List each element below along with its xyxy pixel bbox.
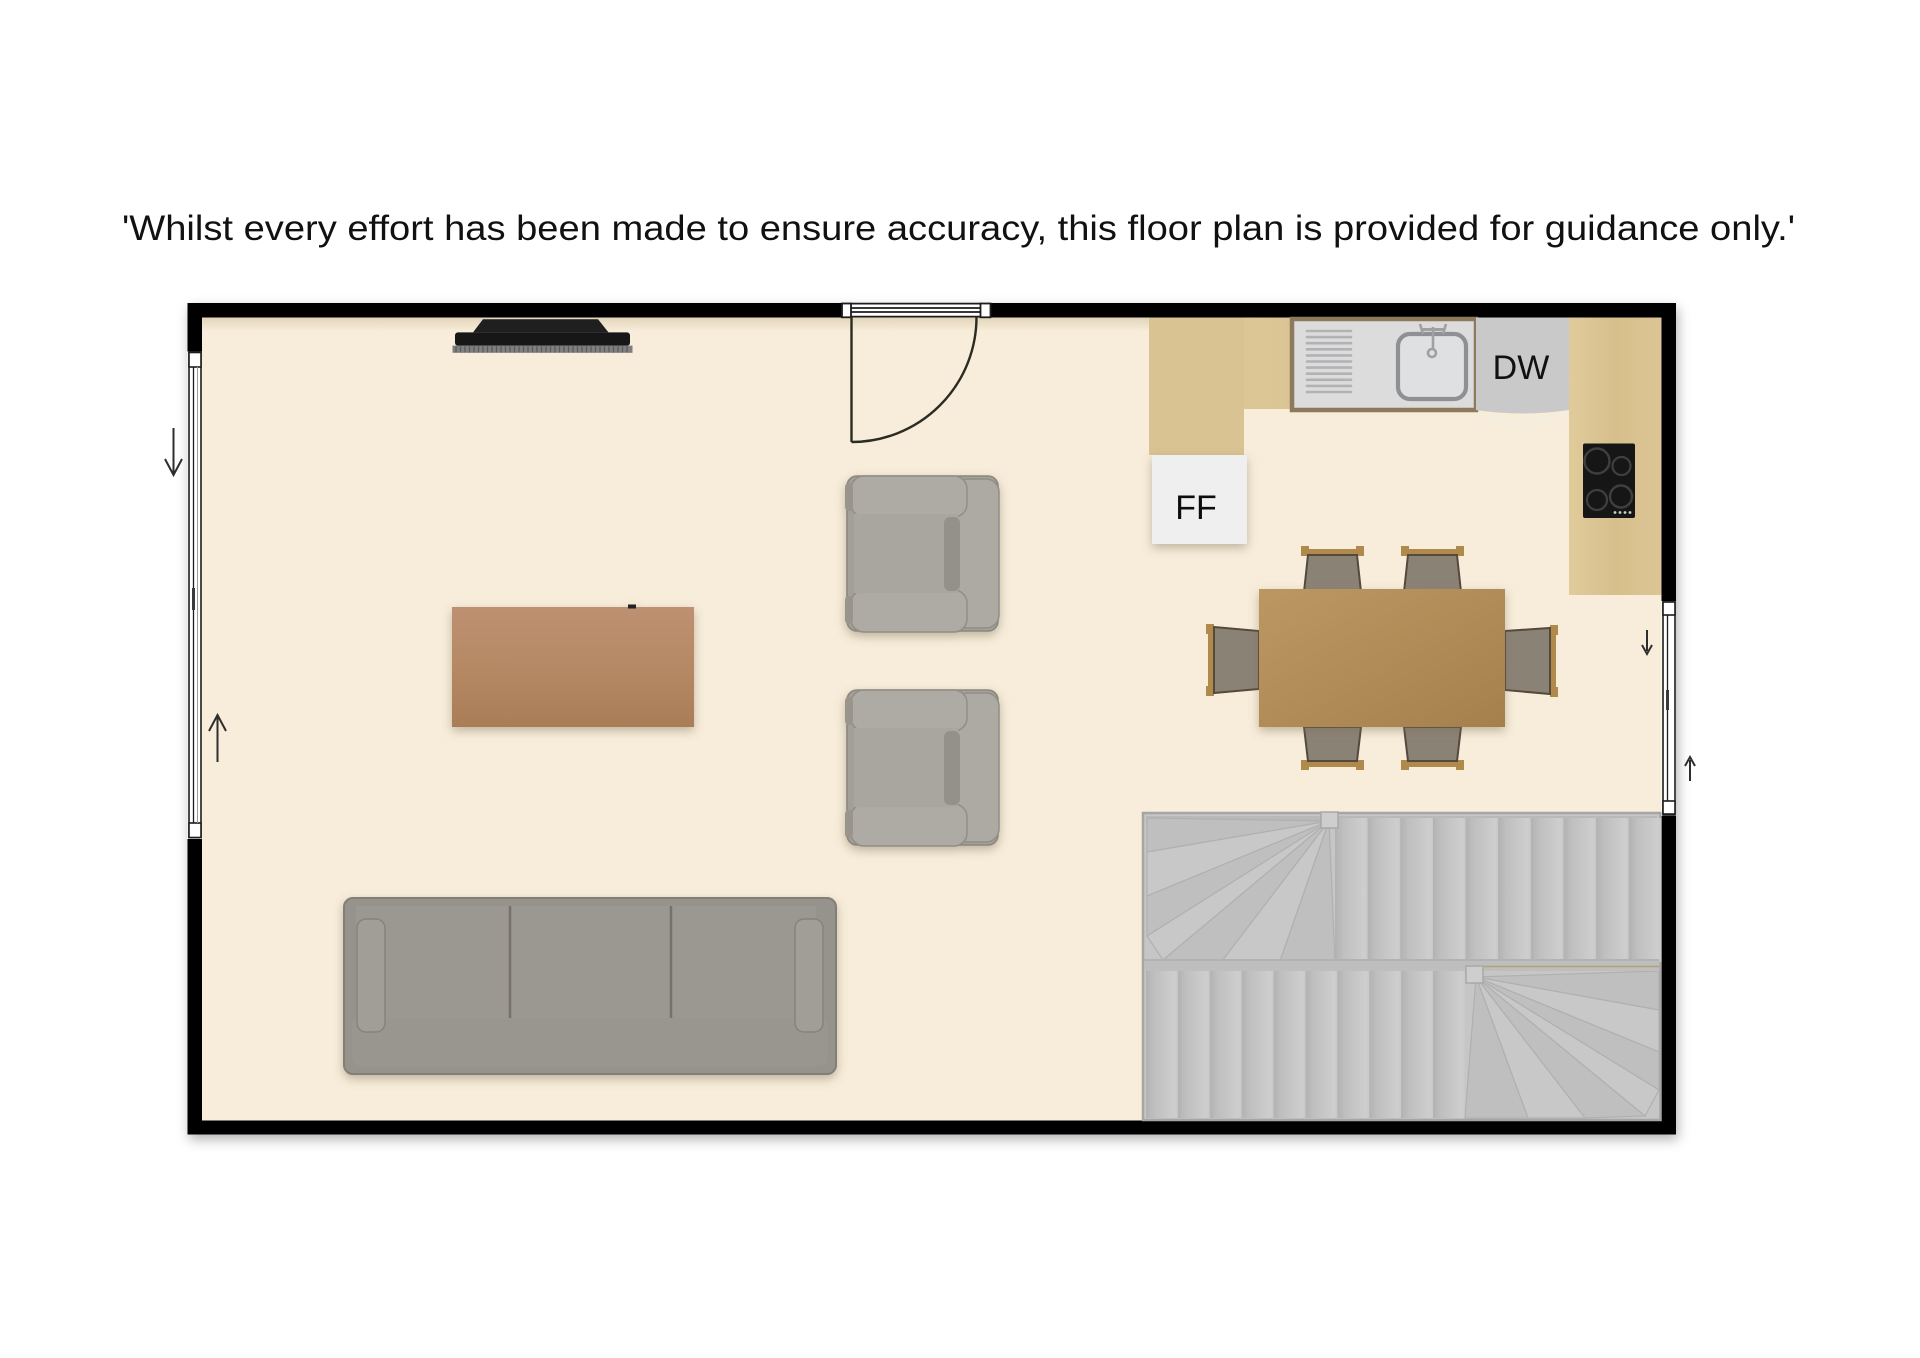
svg-text:DW: DW [1493,349,1550,387]
svg-text:FF: FF [1175,489,1217,527]
svg-text:'Whilst every effort has been: 'Whilst every effort has been made to en… [122,209,1795,248]
